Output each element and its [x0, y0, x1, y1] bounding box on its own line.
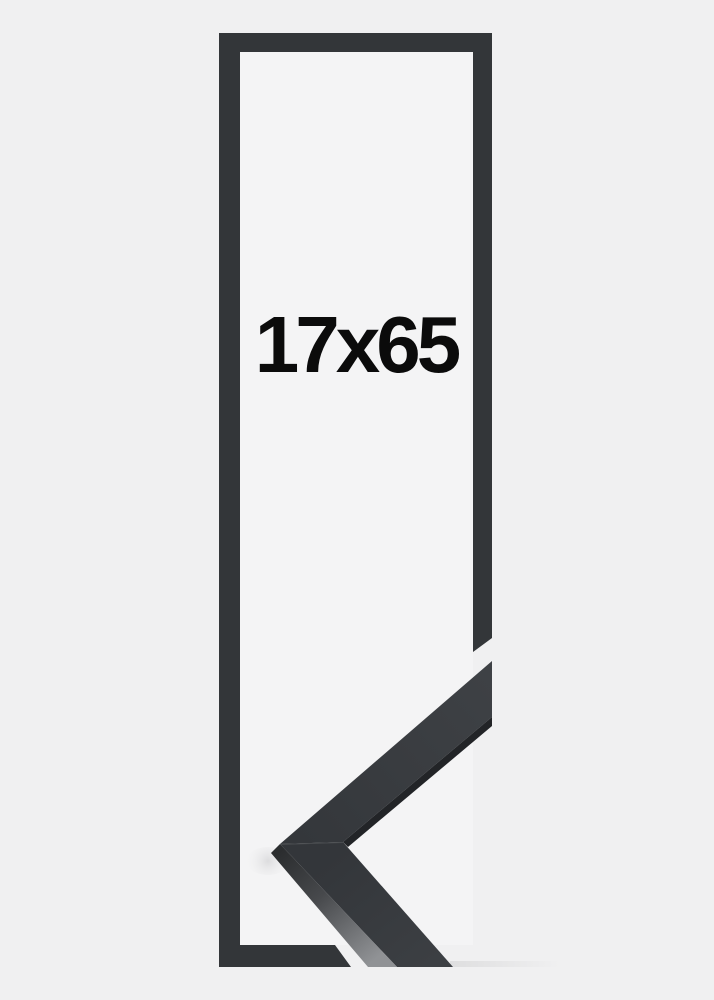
corner-sample-bottom-shadow	[450, 961, 558, 967]
size-label: 17x65	[219, 305, 493, 385]
frame-illustration	[0, 0, 714, 1000]
product-image: 17x65	[0, 0, 714, 1000]
